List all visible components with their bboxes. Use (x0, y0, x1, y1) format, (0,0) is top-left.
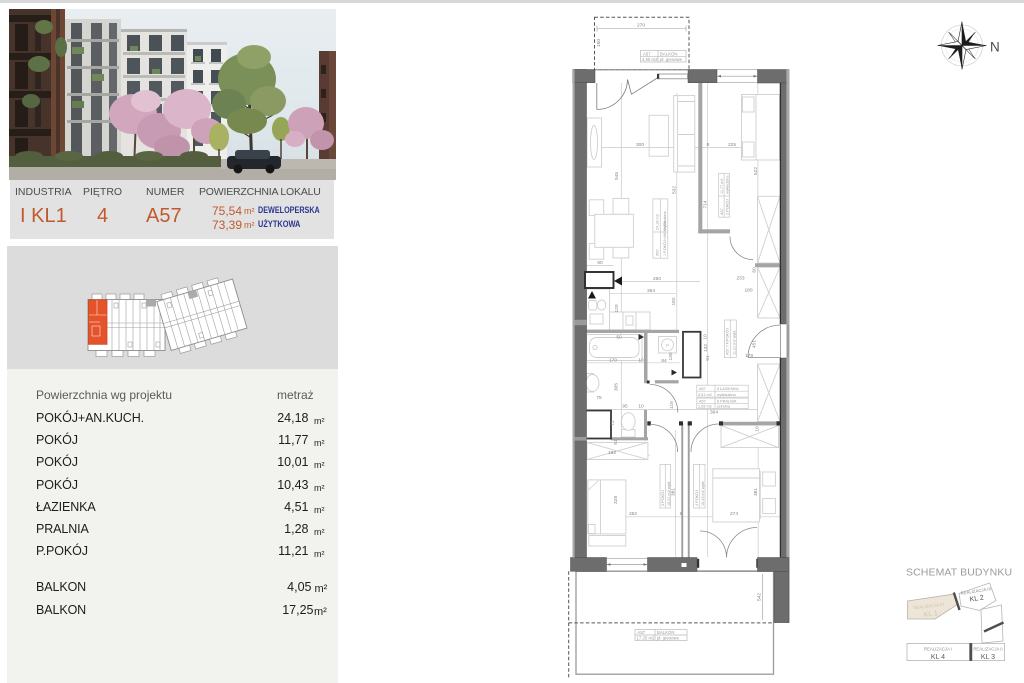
svg-text:542: 542 (757, 593, 763, 601)
svg-text:5 ŁAZIENKA: 5 ŁAZIENKA (717, 387, 739, 391)
svg-text:10: 10 (755, 426, 761, 432)
svg-text:84: 84 (661, 358, 667, 364)
svg-text:3 POKÓJ: 3 POKÓJ (660, 490, 665, 506)
svg-text:532: 532 (672, 186, 678, 194)
svg-text:120: 120 (614, 304, 620, 312)
svg-text:270: 270 (637, 23, 645, 29)
svg-text:REALIZACJA I: REALIZACJA I (924, 647, 952, 652)
svg-text:381: 381 (671, 488, 677, 496)
svg-text:364: 364 (647, 288, 655, 294)
svg-text:A57: A57 (643, 51, 651, 56)
svg-text:A57: A57 (699, 399, 706, 403)
svg-text:179: 179 (745, 353, 753, 359)
svg-text:4 POKÓJ: 4 POKÓJ (694, 490, 699, 506)
svg-text:6 PRALNIA: 6 PRALNIA (717, 399, 737, 403)
svg-text:10: 10 (638, 404, 644, 410)
svg-text:REALIZACJA II: REALIZACJA II (973, 647, 1002, 652)
svg-text:pł. gresowe: pł. gresowe (660, 57, 683, 62)
svg-text:545: 545 (614, 172, 620, 180)
svg-text:51: 51 (705, 355, 711, 361)
svg-text:10,01 m2 wykł.: 10,01 m2 wykł. (667, 481, 671, 506)
svg-text:A57: A57 (656, 249, 660, 256)
svg-text:305: 305 (614, 383, 620, 391)
svg-text:2 POKÓJ: 2 POKÓJ (724, 199, 729, 215)
svg-text:10,43 m2 wykł.: 10,43 m2 wykł. (701, 481, 705, 506)
svg-text:170: 170 (609, 358, 617, 364)
svg-text:50: 50 (616, 335, 622, 341)
svg-text:A57: A57 (638, 630, 646, 635)
svg-text:282: 282 (629, 511, 637, 517)
svg-text:BALKON: BALKON (660, 51, 677, 56)
svg-text:BALKON: BALKON (657, 630, 674, 635)
svg-text:KL 4: KL 4 (931, 654, 945, 661)
svg-text:wykładzina: wykładzina (725, 175, 729, 194)
svg-text:274: 274 (730, 511, 738, 517)
svg-text:A57: A57 (720, 208, 724, 215)
svg-text:11,21 m2 wykł.: 11,21 m2 wykł. (733, 330, 737, 355)
svg-text:225: 225 (728, 142, 736, 148)
svg-text:KL 3: KL 3 (981, 654, 995, 661)
svg-text:8: 8 (707, 142, 710, 148)
svg-text:4,05 m2: 4,05 m2 (642, 57, 658, 62)
svg-text:11,77 m2: 11,77 m2 (720, 178, 724, 194)
svg-text:300: 300 (636, 142, 644, 148)
svg-text:182: 182 (608, 450, 616, 456)
svg-text:180: 180 (744, 288, 752, 294)
svg-text:A57: A57 (699, 387, 706, 391)
svg-text:17,25 m2: 17,25 m2 (637, 636, 656, 641)
svg-text:4,51 m2: 4,51 m2 (698, 393, 712, 397)
svg-text:714: 714 (703, 200, 709, 208)
svg-text:182: 182 (671, 297, 677, 305)
svg-text:522: 522 (753, 167, 759, 175)
svg-text:72: 72 (610, 420, 616, 426)
svg-text:10: 10 (703, 334, 709, 340)
svg-text:250: 250 (653, 276, 661, 282)
svg-text:132: 132 (703, 344, 709, 352)
svg-text:24,18 m2: 24,18 m2 (656, 214, 660, 230)
svg-text:A57 7 P.POKÓJ: A57 7 P.POKÓJ (725, 328, 730, 355)
svg-text:233: 233 (736, 276, 744, 282)
svg-text:10: 10 (638, 358, 644, 364)
svg-text:wykładzina: wykładzina (663, 211, 667, 230)
svg-text:60: 60 (597, 260, 603, 266)
svg-text:pł. gresowe: pł. gresowe (657, 636, 680, 641)
svg-text:150: 150 (596, 39, 602, 47)
svg-text:51: 51 (613, 439, 619, 445)
svg-text:381: 381 (753, 488, 759, 496)
svg-text:60: 60 (752, 267, 758, 273)
svg-text:364: 364 (710, 410, 718, 416)
svg-text:szkolna: szkolna (717, 405, 731, 409)
svg-text:119: 119 (669, 401, 675, 409)
svg-text:1,28 m2: 1,28 m2 (698, 405, 712, 409)
svg-text:wykładzina: wykładzina (717, 393, 736, 397)
svg-text:130: 130 (668, 352, 674, 360)
svg-text:P: P (666, 343, 669, 348)
svg-text:75: 75 (596, 395, 602, 401)
svg-text:328: 328 (613, 496, 619, 504)
svg-text:N: N (990, 40, 1000, 55)
svg-text:451: 451 (752, 340, 758, 348)
svg-text:95: 95 (622, 404, 628, 410)
svg-text:8: 8 (680, 511, 683, 517)
svg-text:SCHEMAT BUDYNKU: SCHEMAT BUDYNKU (906, 567, 1012, 579)
